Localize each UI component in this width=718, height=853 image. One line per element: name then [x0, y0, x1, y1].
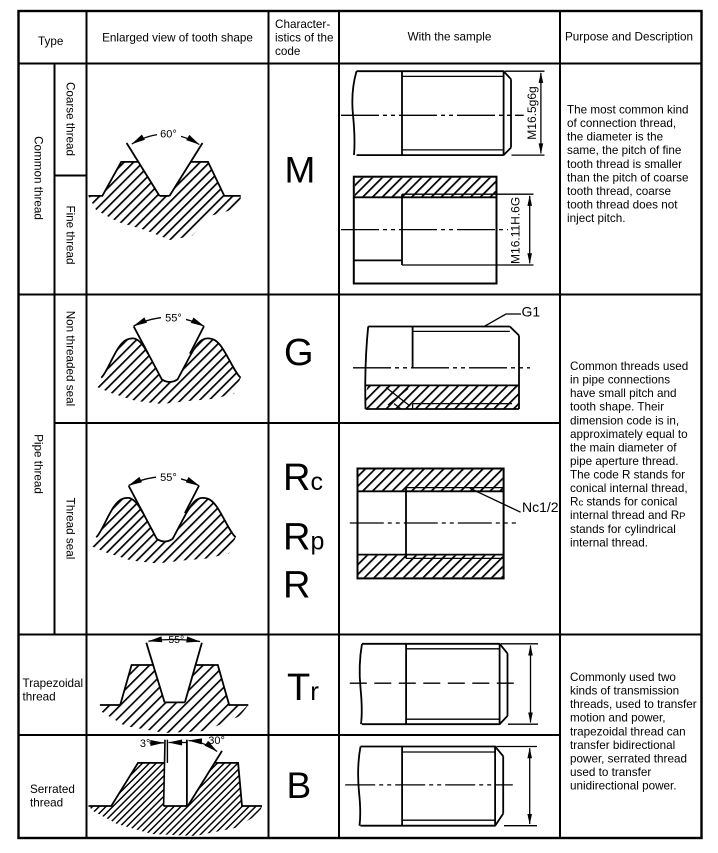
svg-text:transfer bidirectional: transfer bidirectional [570, 739, 675, 752]
svg-text:Coarse thread: Coarse thread [64, 82, 77, 156]
svg-text:power, serrated thread: power, serrated thread [570, 752, 687, 765]
svg-text:Purpose and Description: Purpose and Description [565, 31, 693, 44]
svg-text:stands for cylindrical: stands for cylindrical [570, 523, 676, 536]
svg-text:conical internal thread,: conical internal thread, [570, 482, 688, 495]
svg-text:Rc: Rc [283, 457, 323, 499]
svg-text:the diameter is the: the diameter is the [567, 131, 663, 144]
svg-text:internal thread and RP: internal thread and RP [570, 509, 686, 522]
svg-text:60°: 60° [160, 129, 177, 141]
svg-text:Type: Type [38, 35, 63, 48]
svg-text:istics of the: istics of the [275, 32, 333, 45]
svg-text:the main diameter of: the main diameter of [570, 441, 677, 454]
svg-text:Enlarged view of tooth shape: Enlarged view of tooth shape [102, 32, 253, 45]
svg-text:of connection thread,: of connection thread, [567, 117, 676, 130]
svg-text:R: R [283, 565, 310, 607]
svg-text:The most common kind: The most common kind [567, 104, 688, 117]
svg-text:Non threaded seal: Non threaded seal [64, 311, 77, 407]
svg-text:have small pitch and: have small pitch and [570, 387, 677, 400]
svg-text:B: B [287, 765, 312, 806]
svg-text:M16.11H.6G: M16.11H.6G [509, 197, 523, 264]
svg-text:Commonly used two: Commonly used two [570, 671, 676, 684]
svg-text:threads, used to transfer: threads, used to transfer [570, 698, 697, 711]
svg-text:used to transfer: used to transfer [570, 766, 651, 779]
svg-text:Tr: Tr [287, 667, 319, 709]
svg-text:tooth thread does not: tooth thread does not [567, 199, 678, 212]
svg-text:trapezoidal thread can: trapezoidal thread can [570, 725, 686, 738]
svg-text:G1: G1 [522, 304, 541, 320]
svg-text:Serrated: Serrated [30, 783, 75, 796]
svg-text:Character-: Character- [275, 18, 330, 31]
svg-text:approximately equal to: approximately equal to [570, 428, 688, 441]
svg-text:55°: 55° [165, 313, 182, 325]
svg-text:thread: thread [30, 797, 63, 810]
svg-text:kinds of transmission: kinds of transmission [570, 685, 679, 698]
svg-text:Trapezoidal: Trapezoidal [23, 677, 84, 690]
svg-text:than the pitch of coarse: than the pitch of coarse [567, 171, 689, 184]
svg-text:Thread seal: Thread seal [64, 498, 77, 560]
svg-text:tooth shape. Their: tooth shape. Their [570, 401, 664, 414]
svg-text:pipe aperture thread.: pipe aperture thread. [570, 455, 679, 468]
svg-text:30°: 30° [208, 735, 225, 747]
svg-text:Nc1/2: Nc1/2 [522, 499, 559, 515]
svg-text:The code R stands for: The code R stands for [570, 469, 685, 482]
svg-text:Common thread: Common thread [32, 136, 45, 220]
svg-text:Rc stands for conical: Rc stands for conical [570, 496, 677, 509]
svg-text:in pipe connections: in pipe connections [570, 374, 670, 387]
svg-text:M: M [285, 150, 316, 191]
svg-text:code: code [275, 45, 300, 58]
svg-text:3°: 3° [140, 738, 151, 750]
svg-text:dimension code is in,: dimension code is in, [570, 414, 679, 427]
svg-text:Rp: Rp [283, 517, 324, 559]
svg-text:tooth thread, coarse: tooth thread, coarse [567, 185, 671, 198]
svg-text:unidirectional power.: unidirectional power. [570, 780, 677, 793]
svg-text:Pipe thread: Pipe thread [32, 434, 45, 494]
svg-text:tooth thread is smaller: tooth thread is smaller [567, 158, 682, 171]
svg-text:inject pitch.: inject pitch. [567, 212, 625, 225]
svg-text:motion and power,: motion and power, [570, 712, 666, 725]
svg-text:thread: thread [23, 691, 56, 704]
svg-text:M16.5g6g: M16.5g6g [525, 86, 539, 139]
svg-text:Common threads used: Common threads used [570, 360, 688, 373]
svg-text:With the sample: With the sample [408, 31, 492, 44]
svg-text:Fine thread: Fine thread [64, 205, 77, 264]
svg-text:same, the pitch of fine: same, the pitch of fine [567, 144, 681, 157]
svg-text:55°: 55° [168, 634, 184, 646]
svg-text:G: G [284, 332, 314, 374]
svg-text:internal thread.: internal thread. [570, 536, 648, 549]
